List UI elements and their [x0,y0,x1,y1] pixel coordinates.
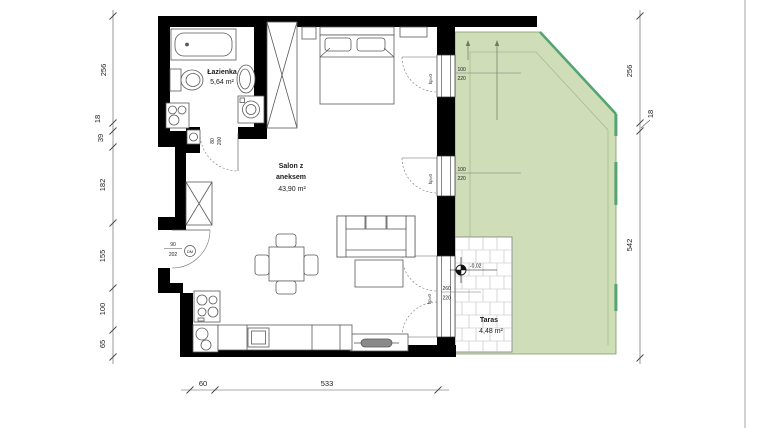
bathroom-name: Łazienka [207,69,237,76]
dim-bottom-60: 60 [199,379,207,388]
tv-stand [350,334,408,351]
wall-entry-top-pier [158,217,186,230]
dim-left-65: 65 [98,340,107,348]
dim-right-18: 18 [646,110,655,118]
wall-bathroom-bottom [238,127,267,139]
floor-plan-canvas: 80 200 90 202 DM Łazienka 5,64 m² Salon … [0,0,760,428]
chair [255,255,269,275]
door-swing-arc [402,256,437,291]
door-swing-arc [402,302,437,337]
window-height: 220 [458,176,467,182]
window-sill: hp=0 [428,173,433,184]
coffee-table [355,260,403,287]
lawn-edge-accent [614,114,617,136]
entrance-door: 90 202 DM [164,230,210,268]
window-width: 100 [458,167,467,173]
sofa [337,216,415,257]
living-name-line2: aneksem [276,174,306,181]
kitchen-sink [193,325,218,352]
dim-left-155: 155 [98,250,107,263]
window-height: 220 [443,296,452,302]
wall-entry-step [158,283,183,293]
kitchen-counter [218,325,352,350]
level-value: -0,02 [470,264,482,270]
sink [237,65,255,93]
chair [276,234,296,247]
entrance-door-height: 202 [169,252,178,258]
entrance-door-width: 90 [170,242,176,248]
wall-top [158,16,537,27]
dim-left-39: 39 [96,134,105,142]
window-sill: hp=0 [428,73,433,84]
bathroom-area: 5,64 m² [210,79,234,86]
tv [361,339,392,347]
washing-machine [238,96,264,123]
living-name-line1: Salon z [279,163,304,170]
dim-left-182: 182 [98,179,107,192]
bed [302,27,427,104]
wall-right-pier4 [437,337,455,357]
chair [276,281,296,294]
dim-right-542: 542 [625,239,634,252]
window-width: 100 [458,67,467,73]
dining-table [255,234,318,294]
wardrobe [267,22,297,128]
bathroom-door-width: 80 [210,138,216,144]
wall-right-pier2 [437,97,455,156]
water-heater [166,103,189,128]
terrace-name: Taras [480,317,498,324]
wall-right-pier3 [437,196,455,256]
bathroom-door: 80 200 [200,133,238,171]
dim-bottom-533: 533 [321,379,334,388]
dim-right-256: 256 [625,65,634,78]
wall-left-step [158,131,186,147]
shaft-box [186,182,212,225]
wall-right-pier1 [437,16,455,55]
window-sill: hp=0 [427,293,432,304]
gas-point [187,130,200,144]
toilet [170,69,203,91]
bathtub [171,29,236,60]
floor-plan-svg: 80 200 90 202 DM Łazienka 5,64 m² Salon … [0,0,760,428]
bathroom-door-height: 200 [217,137,223,146]
window-width: 260 [443,286,452,292]
pillow [357,38,385,51]
chair [304,255,318,275]
window-height: 220 [458,76,467,82]
entrance-door-tag: DM [187,249,193,254]
bathroom-fixtures [166,29,264,144]
wall-left-living [175,147,186,219]
living-area: 43,90 m² [278,186,306,193]
lawn-edge-accent [614,284,617,311]
lawn-edge-accent [614,162,617,205]
kitchen-stove [194,291,220,322]
dim-left-100: 100 [98,303,107,316]
dim-left-18: 18 [93,115,102,123]
terrace-area: 4,48 m² [479,328,503,335]
dim-left-256: 256 [99,64,108,77]
